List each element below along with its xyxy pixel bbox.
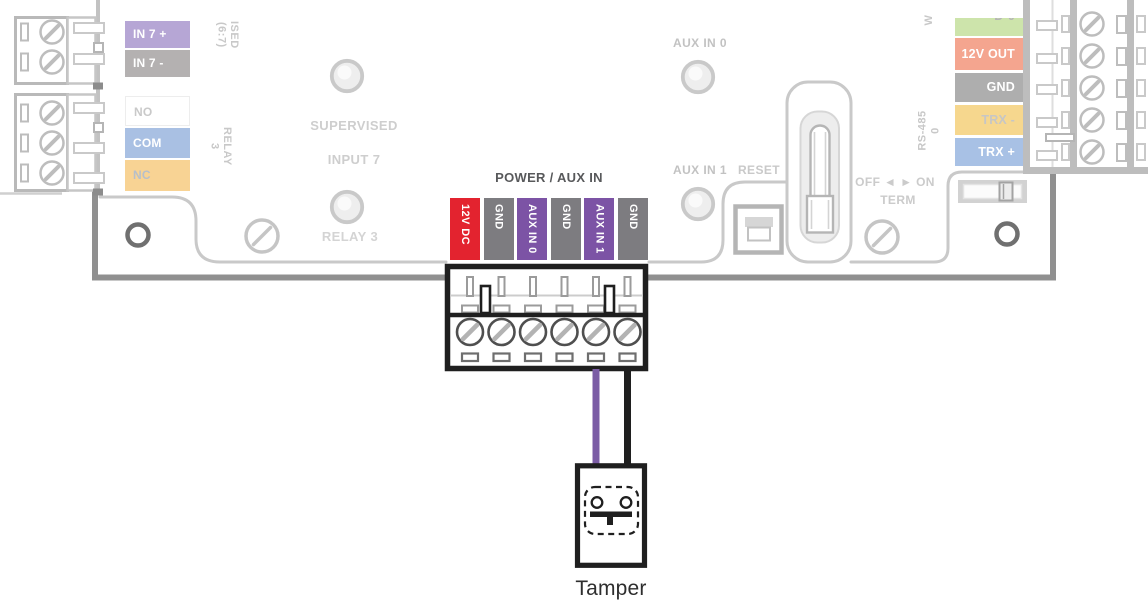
terminal-label-in7-minus: IN 7 - — [125, 50, 190, 77]
terminal-12v-dc: 12V DC — [450, 198, 480, 260]
terminal-gnd-3: GND — [618, 198, 648, 260]
terminal-label-com: COM — [125, 128, 190, 158]
terminal-block-left-top — [16, 18, 105, 90]
terminal-label-trx-minus: TRX - — [955, 105, 1023, 135]
terminal-block-right — [1023, 0, 1148, 174]
relay-3-led-icon — [332, 192, 362, 222]
terminal-label-d0: D-0 — [955, 18, 1023, 36]
supervised-input-7-labels: IN 7 + IN 7 - — [125, 21, 190, 79]
relay-3-vertical-label: RELAY 3 — [208, 122, 233, 170]
wiring-diagram-canvas: IN 7 + IN 7 - NO COM NC D-0 12V OUT GND … — [0, 0, 1148, 616]
terminal-gnd-1: GND — [484, 198, 514, 260]
power-aux-title: POWER / AUX IN — [450, 170, 648, 185]
terminal-label-gnd: GND — [955, 73, 1023, 102]
mounting-hole-right — [997, 224, 1018, 245]
term-off-on-label: OFF ◄ ► ON — [843, 175, 947, 189]
aux-in-0-label: AUX IN 0 — [648, 36, 752, 50]
reset-button-icon — [736, 207, 782, 253]
terminal-label-trx-plus: TRX + — [955, 138, 1023, 166]
aux-in-0-led-icon — [683, 62, 713, 92]
term-label: TERM — [846, 193, 950, 207]
tamper-switch-icon — [578, 466, 645, 566]
relay-3-label: RELAY 3 — [290, 229, 410, 244]
supervised-input-7-label: SUPERVISED INPUT 7 — [285, 100, 415, 168]
terminal-aux-in-1: AUX IN 1 — [584, 198, 614, 260]
terminal-label-nc: NC — [125, 160, 190, 191]
reset-label: RESET — [707, 163, 811, 177]
terminal-label-no: NO — [125, 96, 190, 126]
mounting-hole-left — [128, 225, 149, 246]
rs485-vertical-label: RS-485 0 — [917, 87, 944, 175]
rs485-labels: D-0 12V OUT GND TRX - TRX + — [955, 18, 1023, 166]
terminal-gnd-2: GND — [551, 198, 581, 260]
wire-contact-pin — [481, 286, 490, 313]
wire-contact-pin — [605, 286, 614, 313]
power-aux-terminal-row: 12V DC GND AUX IN 0 GND AUX IN 1 GND — [450, 198, 648, 260]
terminal-block-left-bottom — [16, 95, 105, 196]
terminal-aux-in-0: AUX IN 0 — [517, 198, 547, 260]
supervised-67-vertical-label: ISED (6:7) — [215, 10, 240, 60]
aux-in-1-led-icon — [683, 189, 713, 219]
terminal-label-in7-plus: IN 7 + — [125, 21, 190, 48]
wiegand-vertical-label: W — [923, 8, 937, 32]
screw-icon — [41, 102, 64, 185]
fuse-icon — [801, 112, 840, 243]
term-slide-switch-icon — [958, 180, 1027, 203]
relay-3-labels: NO COM NC — [125, 96, 190, 193]
supervised-input-7-led-icon — [332, 61, 362, 91]
power-aux-connector — [448, 267, 646, 369]
screw-icon — [1081, 13, 1104, 164]
relay-3-screw-icon — [246, 220, 278, 252]
tamper-label: Tamper — [546, 577, 676, 601]
term-screw-icon — [866, 221, 898, 253]
terminal-label-12v-out: 12V OUT — [955, 38, 1023, 70]
